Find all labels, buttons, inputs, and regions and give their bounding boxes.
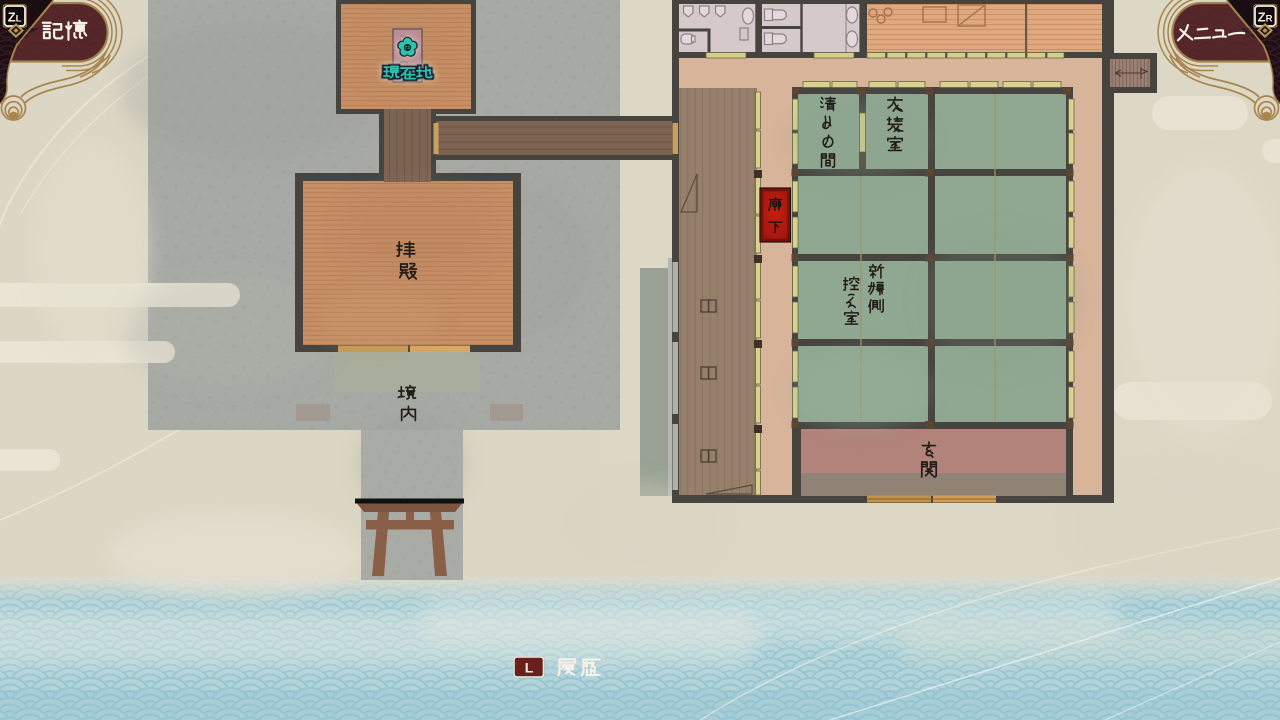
svg-text:L: L: [525, 660, 534, 676]
